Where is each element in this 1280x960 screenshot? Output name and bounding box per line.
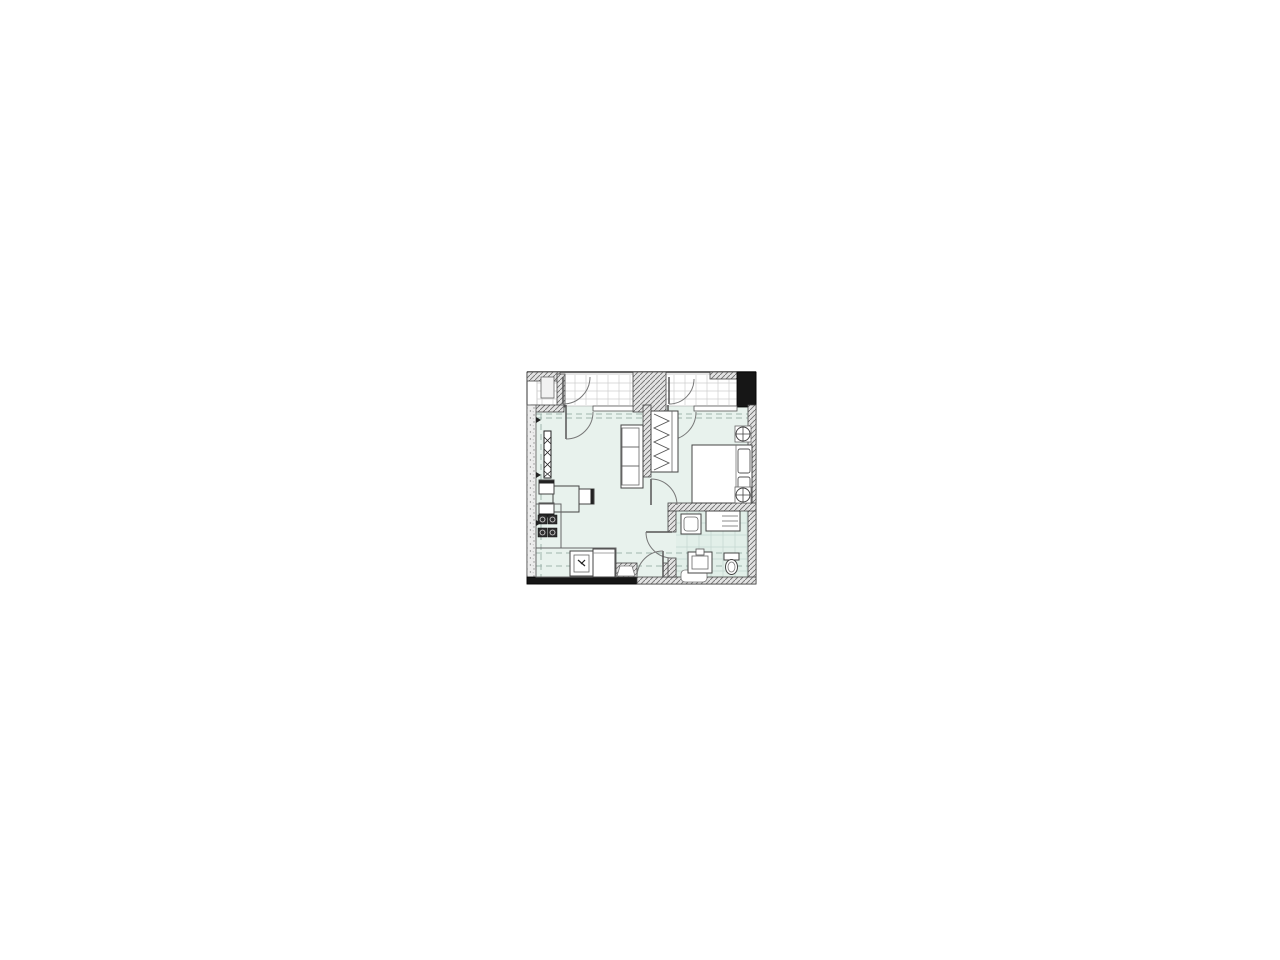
balcony-cabinet	[541, 377, 554, 398]
entry-threshold	[617, 566, 635, 576]
floor-plan-shapes	[527, 372, 756, 584]
window-left-frame	[593, 406, 633, 411]
floor-plan-image	[0, 0, 1280, 960]
balcony-left-pier	[557, 374, 565, 407]
floor-plan-svg	[0, 0, 1280, 960]
cooktop-burner-2	[548, 515, 557, 524]
bathroom-sink-faucet	[696, 549, 704, 555]
bathroom-left-wall-lower	[668, 558, 676, 577]
living-bedroom-wall	[643, 405, 651, 477]
vent-shaft	[737, 372, 756, 407]
bottom-wall-black	[527, 577, 637, 584]
balcony-right-beam	[710, 372, 737, 379]
sofa	[621, 425, 643, 488]
bathroom-left-wall-upper	[668, 511, 676, 532]
left-exterior-wall	[527, 405, 536, 584]
window-right-frame	[694, 406, 737, 411]
bathroom-top-wall	[668, 503, 756, 511]
cooktop-burner-4	[548, 528, 557, 537]
toilet-tank	[724, 553, 739, 560]
cooktop-burner-3	[538, 528, 547, 537]
